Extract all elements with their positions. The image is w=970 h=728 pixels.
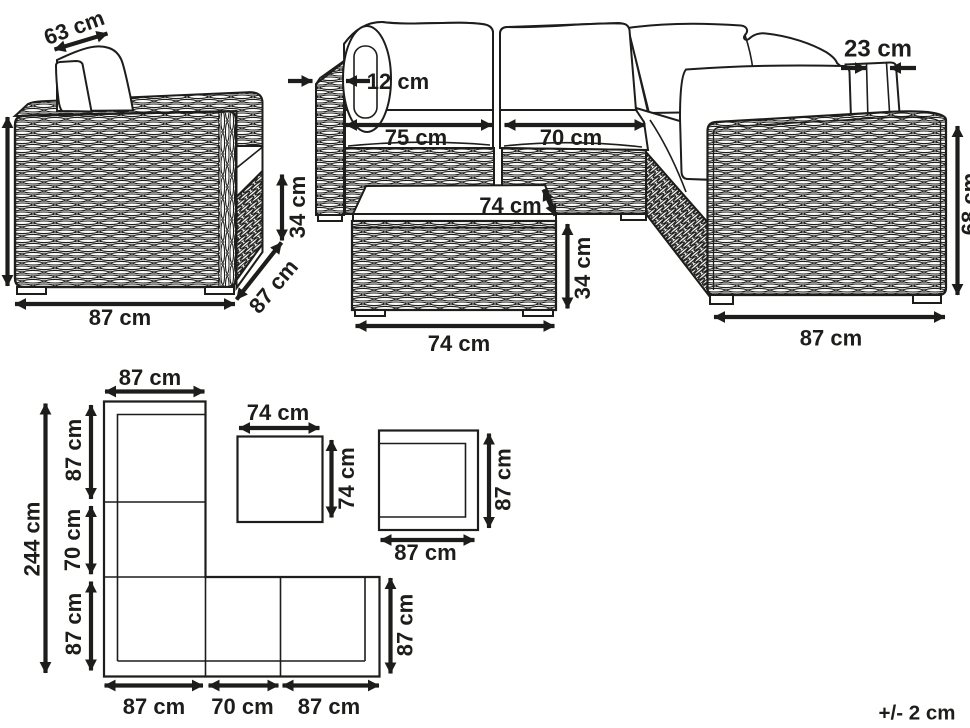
svg-text:87 cm: 87 cm xyxy=(61,593,86,655)
svg-text:87 cm: 87 cm xyxy=(393,594,418,656)
svg-text:87 cm: 87 cm xyxy=(298,694,360,719)
svg-text:70 cm: 70 cm xyxy=(540,125,602,150)
svg-text:70 cm: 70 cm xyxy=(211,694,273,719)
svg-text:87 cm: 87 cm xyxy=(491,448,516,510)
svg-text:75 cm: 75 cm xyxy=(385,125,447,150)
svg-text:87 cm: 87 cm xyxy=(61,419,86,481)
svg-text:87 cm: 87 cm xyxy=(123,694,185,719)
svg-text:+/- 2 cm: +/- 2 cm xyxy=(879,702,956,725)
svg-text:34 cm: 34 cm xyxy=(570,237,595,299)
svg-text:74 cm: 74 cm xyxy=(428,331,490,356)
svg-text:23 cm: 23 cm xyxy=(844,36,912,63)
svg-text:74 cm: 74 cm xyxy=(247,400,309,425)
svg-text:244 cm: 244 cm xyxy=(20,502,45,577)
svg-text:87 cm: 87 cm xyxy=(119,365,181,390)
svg-text:74 cm: 74 cm xyxy=(479,193,541,218)
svg-text:70 cm: 70 cm xyxy=(60,509,85,571)
svg-text:74 cm: 74 cm xyxy=(334,447,359,509)
svg-text:87 cm: 87 cm xyxy=(800,326,862,351)
svg-text:34 cm: 34 cm xyxy=(285,176,310,238)
svg-text:12 cm: 12 cm xyxy=(367,69,429,94)
svg-text:68 cm: 68 cm xyxy=(957,173,970,235)
svg-text:87 cm: 87 cm xyxy=(89,305,151,330)
svg-text:87 cm: 87 cm xyxy=(394,540,456,565)
